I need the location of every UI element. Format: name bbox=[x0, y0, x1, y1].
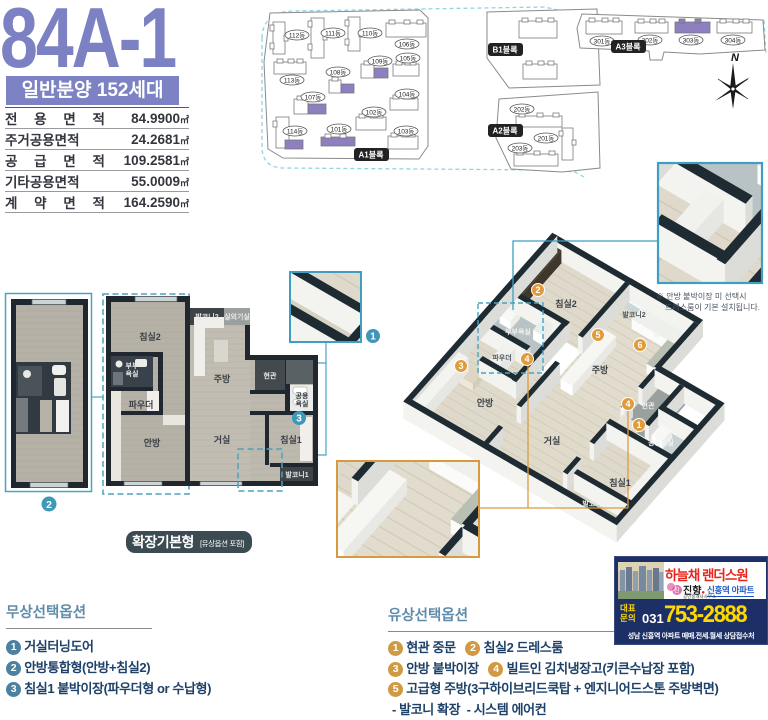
svg-text:파우더: 파우더 bbox=[129, 399, 154, 410]
svg-text:6: 6 bbox=[637, 340, 642, 350]
svg-text:301동: 301동 bbox=[594, 38, 611, 46]
svg-text:111동: 111동 bbox=[325, 30, 341, 38]
svg-text:102동: 102동 bbox=[366, 109, 383, 117]
svg-text:114동: 114동 bbox=[287, 128, 303, 136]
svg-text:101동: 101동 bbox=[331, 126, 348, 134]
svg-text:주방: 주방 bbox=[214, 373, 231, 384]
svg-text:욕실: 욕실 bbox=[126, 369, 139, 378]
svg-text:확장기본형: 확장기본형 bbox=[132, 534, 194, 550]
svg-text:안방: 안방 bbox=[477, 397, 494, 408]
svg-text:발코니1: 발코니1 bbox=[582, 499, 605, 508]
svg-text:거실: 거실 bbox=[544, 435, 561, 446]
svg-text:110동: 110동 bbox=[362, 30, 378, 38]
svg-text:침실2: 침실2 bbox=[139, 331, 161, 342]
svg-text:4: 4 bbox=[524, 354, 529, 364]
svg-text:5: 5 bbox=[595, 330, 600, 340]
svg-text:[유상옵션 포함]: [유상옵션 포함] bbox=[200, 538, 244, 548]
svg-text:107동: 107동 bbox=[305, 94, 322, 102]
svg-text:202동: 202동 bbox=[514, 106, 531, 114]
svg-text:A2블록: A2블록 bbox=[493, 126, 519, 136]
svg-text:104동: 104동 bbox=[399, 91, 416, 99]
svg-text:드레스룸이 기본 설치됩니다.: 드레스룸이 기본 설치됩니다. bbox=[665, 302, 760, 312]
svg-text:실외기실: 실외기실 bbox=[653, 329, 679, 338]
svg-text:106동: 106동 bbox=[399, 41, 416, 49]
svg-text:안방: 안방 bbox=[144, 437, 161, 448]
svg-text:침실2: 침실2 bbox=[555, 298, 577, 309]
svg-text:침실1: 침실1 bbox=[609, 477, 631, 488]
svg-text:108동: 108동 bbox=[330, 69, 347, 77]
svg-text:2: 2 bbox=[535, 285, 540, 295]
svg-text:실외기실: 실외기실 bbox=[224, 312, 250, 321]
svg-text:부부욕실: 부부욕실 bbox=[505, 327, 531, 336]
svg-text:현관: 현관 bbox=[264, 371, 277, 380]
svg-text:113동: 113동 bbox=[284, 77, 300, 85]
svg-text:112동: 112동 bbox=[289, 32, 305, 40]
svg-text:3: 3 bbox=[458, 361, 463, 371]
svg-text:B1블록: B1블록 bbox=[493, 45, 519, 55]
svg-text:201동: 201동 bbox=[538, 135, 555, 143]
svg-text:304동: 304동 bbox=[725, 37, 742, 45]
svg-text:발코니2: 발코니2 bbox=[622, 310, 645, 319]
svg-text:105동: 105동 bbox=[400, 55, 417, 63]
svg-text:N: N bbox=[731, 52, 740, 64]
svg-text:303동: 303동 bbox=[683, 37, 700, 45]
svg-text:진: 진 bbox=[674, 587, 680, 595]
svg-text:109동: 109동 bbox=[372, 58, 389, 66]
svg-text:A3블록: A3블록 bbox=[616, 42, 642, 52]
svg-text:1: 1 bbox=[636, 420, 641, 430]
svg-text:2: 2 bbox=[46, 499, 52, 511]
svg-text:파우더: 파우더 bbox=[492, 353, 511, 362]
svg-text:거실: 거실 bbox=[214, 434, 231, 445]
svg-text:공용욕실: 공용욕실 bbox=[648, 438, 674, 447]
svg-text:※ 안방 붙박이장 미 선택시: ※ 안방 붙박이장 미 선택시 bbox=[656, 291, 747, 301]
svg-text:4: 4 bbox=[625, 399, 630, 409]
svg-text:현관: 현관 bbox=[642, 401, 655, 410]
svg-text:주방: 주방 bbox=[592, 364, 609, 375]
svg-text:103동: 103동 bbox=[398, 128, 415, 136]
svg-text:부부: 부부 bbox=[126, 361, 139, 370]
svg-text:발코니2: 발코니2 bbox=[195, 312, 218, 321]
